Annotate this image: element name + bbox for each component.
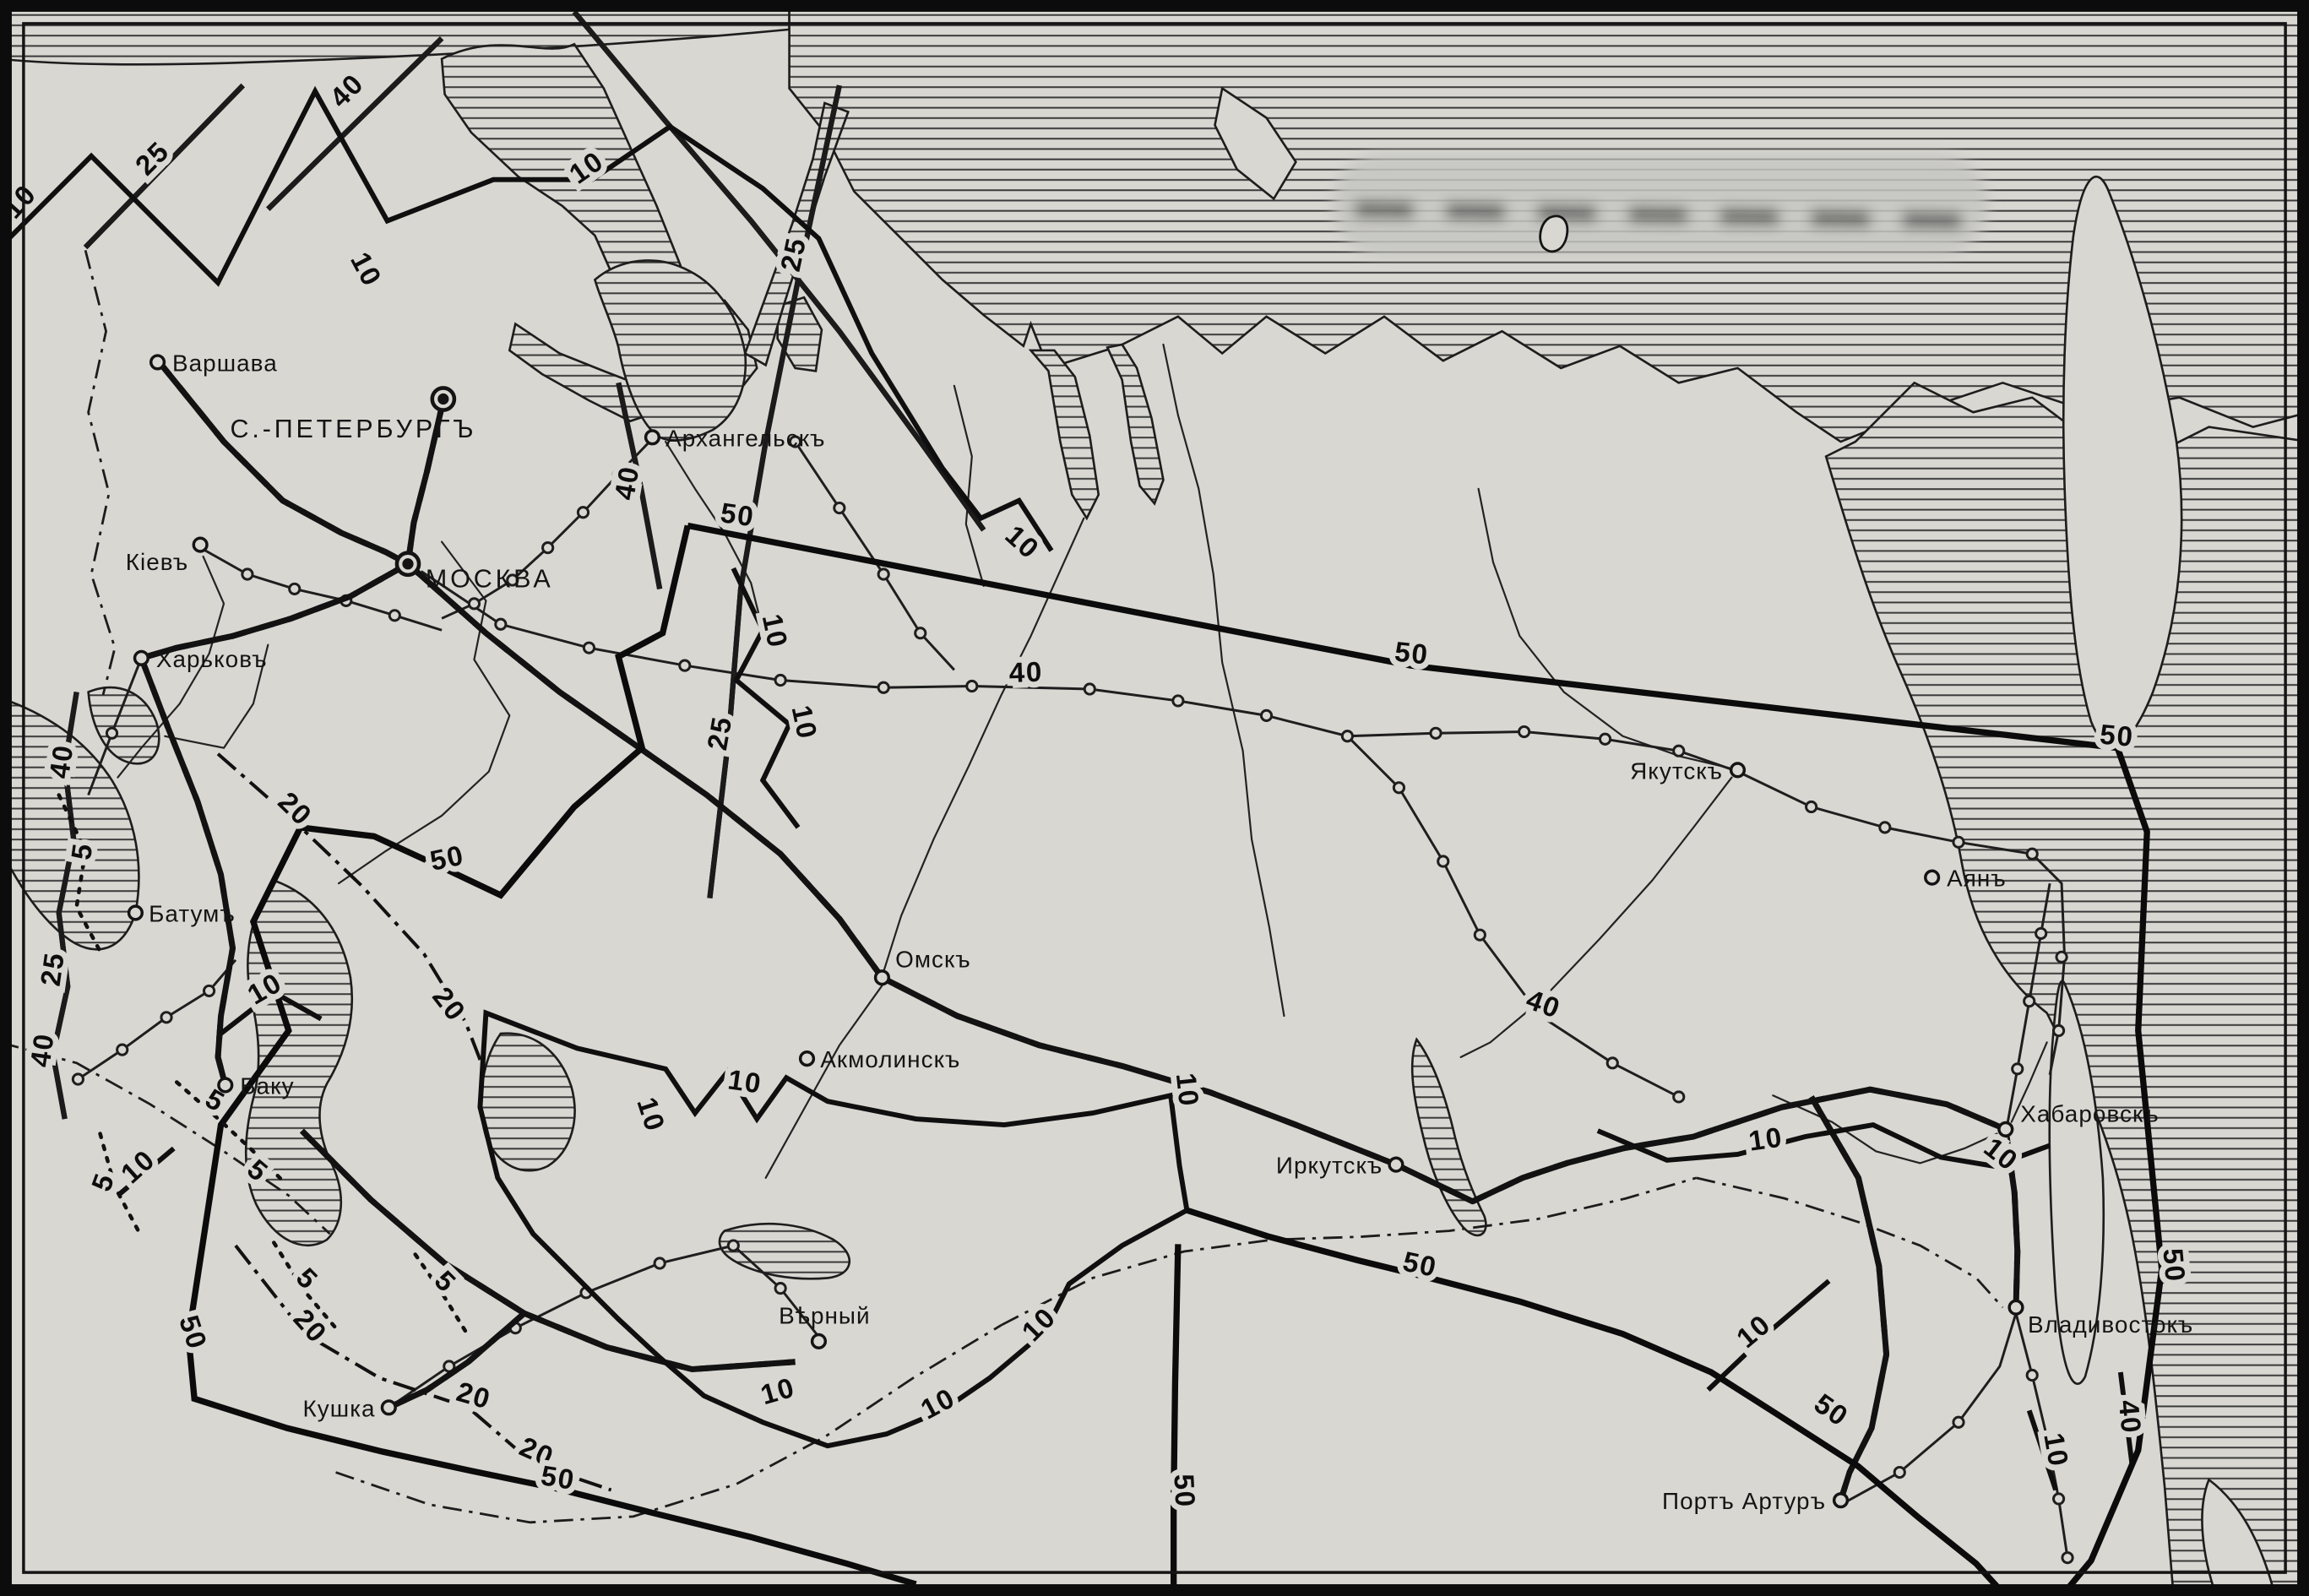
city-marker-verny <box>812 1335 826 1349</box>
isoline-label-50: 50 <box>2156 1247 2190 1284</box>
city-marker-kushka <box>382 1401 395 1414</box>
city-marker-kiev <box>193 538 207 551</box>
isoline-label-10: 10 <box>1747 1121 1785 1157</box>
isoline-label-50: 50 <box>1400 1246 1440 1284</box>
map-canvas: 10 25 40 10 10 25 10 40 25 50 50 50 40 4… <box>0 0 2309 1596</box>
isoline-label-50: 50 <box>719 497 757 533</box>
isoline-label-50: 50 <box>2099 719 2135 753</box>
city-label-batum: Батумъ <box>149 900 236 926</box>
isoline-label-40: 40 <box>1008 657 1044 689</box>
city-label-vladivostok: Владивостокъ <box>2028 1311 2193 1338</box>
isoline-label-25: 25 <box>35 950 71 988</box>
isoline-label-10: 10 <box>785 703 823 742</box>
isoline-label-40: 40 <box>44 742 79 780</box>
smudge-redaction <box>1333 153 1988 256</box>
isoline-label-50: 50 <box>1394 637 1431 671</box>
isoline-label-40: 40 <box>609 464 645 502</box>
city-marker-kharkov <box>135 652 149 665</box>
isoline-label-10: 10 <box>1170 1072 1204 1109</box>
city-marker-akmolinsk <box>801 1052 814 1066</box>
city-label-akmolinsk: Акмолинскъ <box>820 1046 960 1072</box>
city-label-ayan: Аянъ <box>1947 866 2007 892</box>
isoline-label-40: 40 <box>2112 1398 2146 1435</box>
city-akmolinsk: Акмолинскъ <box>801 1046 961 1072</box>
city-marker-ayan <box>1926 871 1939 884</box>
isoline-label-10: 10 <box>2037 1430 2073 1469</box>
isoline-label-50: 50 <box>1167 1474 1200 1509</box>
city-arkhangelsk: Архангельскъ <box>646 425 826 451</box>
isoline-label-50: 50 <box>539 1460 578 1496</box>
city-label-moskva: МОСКВА <box>426 565 554 594</box>
city-label-baku: Баку <box>240 1072 294 1099</box>
city-port-artur: Портъ Артуръ <box>1662 1488 1847 1514</box>
city-label-varshava: Варшава <box>172 350 278 376</box>
city-marker-khabarovsk <box>1999 1122 2013 1136</box>
map-page: 10 25 40 10 10 25 10 40 25 50 50 50 40 4… <box>0 0 2309 1596</box>
isoline-label-40: 40 <box>25 1031 61 1069</box>
city-label-kushka: Кушка <box>303 1395 376 1421</box>
city-marker-yakutsk <box>1731 763 1745 777</box>
isoline-label-25: 25 <box>702 714 738 752</box>
city-marker-irkutsk <box>1389 1158 1403 1171</box>
city-label-st-petersburg: С.-ПЕТЕРБУРГЪ <box>231 415 477 443</box>
city-label-omsk: Омскъ <box>895 947 971 973</box>
isoline-label-10: 10 <box>725 1064 763 1099</box>
city-label-yakutsk: Якутскъ <box>1630 757 1723 784</box>
isoline-label-10: 10 <box>756 611 794 651</box>
city-marker-vladivostok <box>2009 1300 2023 1314</box>
city-label-arkhangelsk: Архангельскъ <box>666 425 825 451</box>
city-marker-arkhangelsk <box>646 431 660 444</box>
city-label-port-artur: Портъ Артуръ <box>1662 1488 1826 1514</box>
city-marker-baku <box>219 1078 232 1092</box>
city-marker-omsk <box>876 971 889 985</box>
city-marker-port-artur <box>1834 1494 1848 1507</box>
city-marker-batum <box>129 906 143 920</box>
city-label-khabarovsk: Хабаровскъ <box>2020 1101 2159 1127</box>
city-label-verny: Вѣрный <box>779 1302 870 1328</box>
small-island <box>1540 216 1567 252</box>
city-label-irkutsk: Иркутскъ <box>1276 1153 1383 1179</box>
city-label-kharkov: Харьковъ <box>156 646 268 672</box>
city-label-kiev: Кіевъ <box>126 549 188 575</box>
city-marker-varshava <box>151 356 165 369</box>
